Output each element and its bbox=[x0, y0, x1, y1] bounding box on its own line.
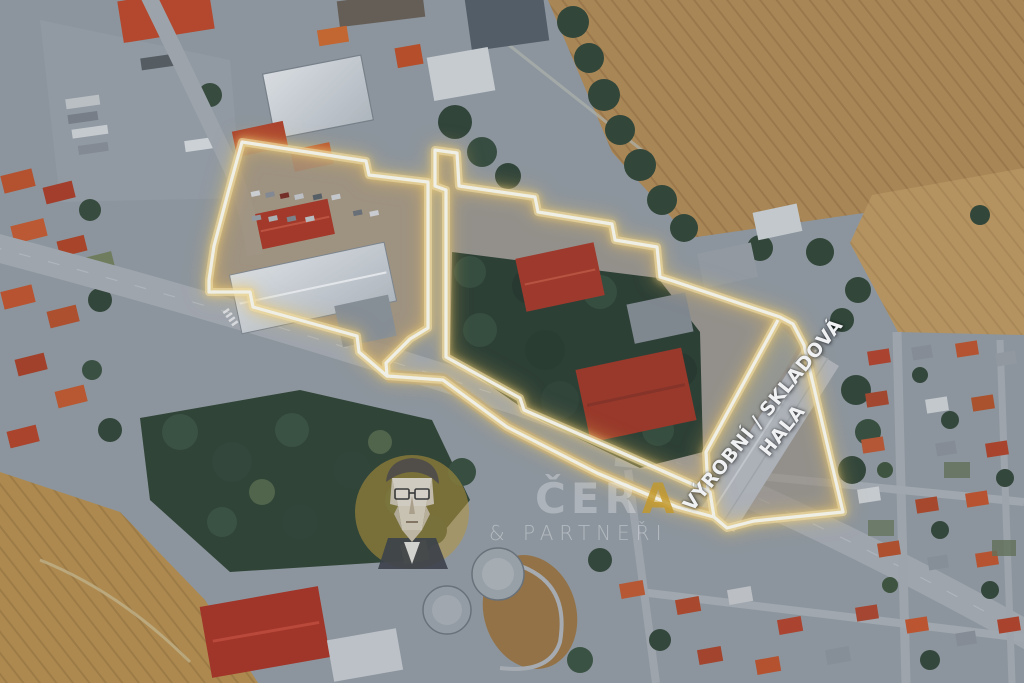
watermark-partners-text: & PARTNEŘI bbox=[489, 521, 667, 545]
scene-graphics bbox=[0, 0, 1024, 683]
satellite-photo: VÝROBNÍ / SKLADOVÁ HALA ČERA & PARTNEŘI bbox=[0, 0, 1024, 683]
watermark-portrait bbox=[355, 455, 469, 569]
watermark-brand-white: ČER bbox=[535, 474, 642, 523]
watermark-brand-text: ČERA bbox=[535, 474, 679, 523]
watermark-brand-gold-letter: A bbox=[642, 474, 680, 523]
